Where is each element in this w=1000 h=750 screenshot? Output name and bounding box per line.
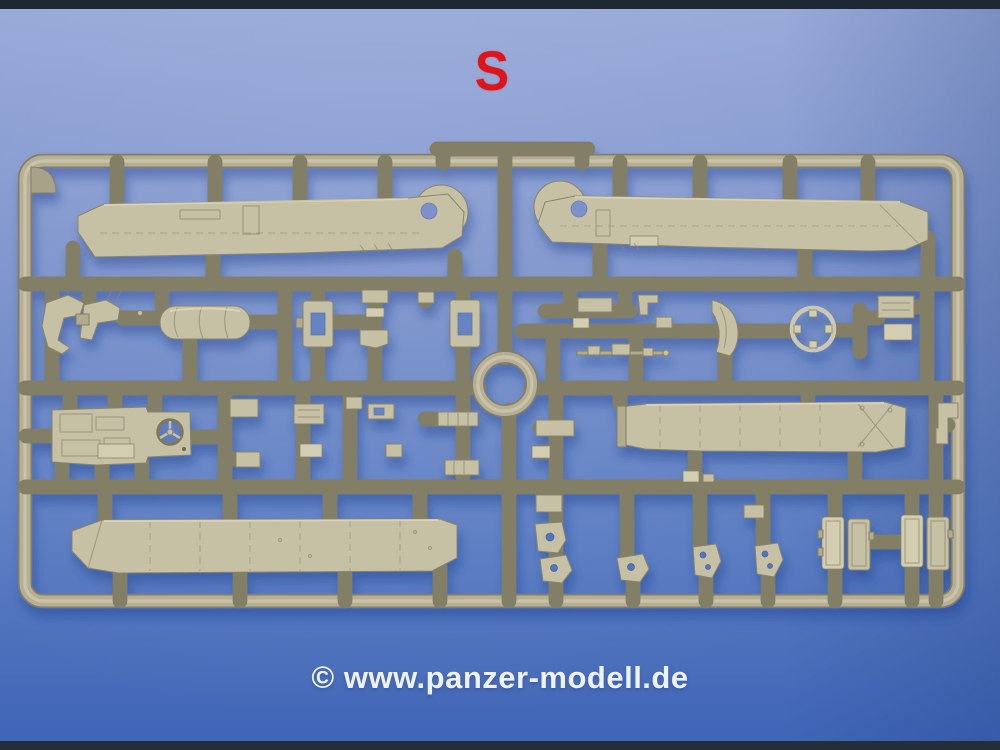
tarpaulin-roll-part [160,306,250,339]
fender-right-part [617,402,906,452]
sprue-photo: S © www.panzer-modell.de [0,0,1000,750]
fender-left-part [72,519,457,573]
background-vignette [0,0,1000,750]
mount-frame-part [450,300,480,347]
sprue-letter-label: S [464,38,519,103]
photo-scene [0,0,1000,750]
engine-deck-part [52,407,191,465]
top-edge-strip [0,0,1000,9]
watermark-text: © www.panzer-modell.de [0,660,1000,696]
bottom-edge-strip [0,741,1000,750]
